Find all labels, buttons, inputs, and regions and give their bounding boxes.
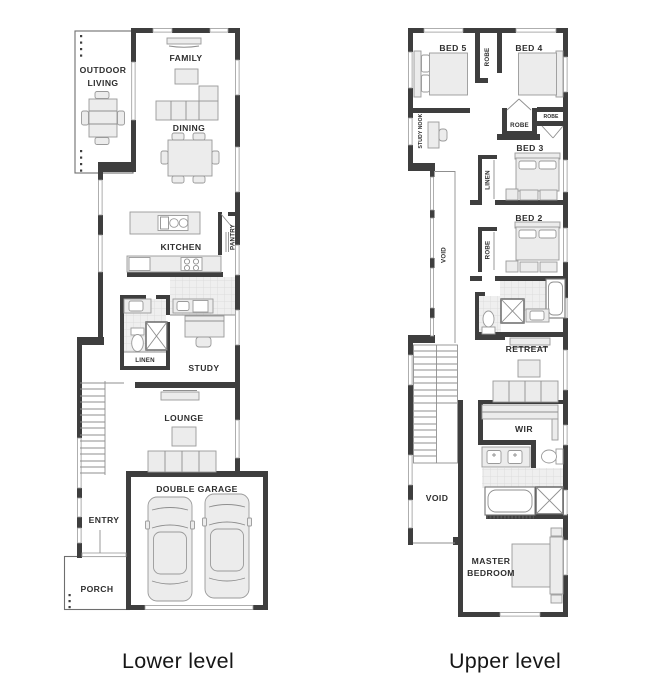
label-void-lower: VOID [426, 493, 449, 503]
label-robe-top: ROBE [484, 48, 491, 67]
toilet [482, 311, 495, 334]
bed-5 [414, 51, 468, 97]
label-bed2: BED 2 [515, 213, 542, 223]
desk-chair [196, 337, 211, 347]
lounge-sofa [148, 451, 216, 472]
label-bed5: BED 5 [439, 43, 466, 53]
label-robe-mid-left: ROBE [510, 122, 529, 129]
bed-4 [519, 51, 564, 97]
stairs [414, 345, 458, 463]
label-robe-bed2: ROBE [485, 241, 492, 260]
label-double-garage: DOUBLE GARAGE [156, 484, 238, 494]
garage-door [145, 606, 253, 610]
basin [129, 301, 143, 311]
svg-text:BEDROOM: BEDROOM [467, 568, 515, 578]
family-tv-unit [167, 38, 201, 47]
caption-upper-level: Upper level [449, 649, 561, 673]
label-bed4: BED 4 [515, 43, 542, 53]
label-study: STUDY [188, 363, 219, 373]
lounge-rug [172, 427, 196, 446]
upper-level-plan: BED 5 ROBE BED 4 ROBE ROBE STUDY NOOK BE… [408, 28, 568, 617]
stairs [80, 381, 124, 475]
label-entry: ENTRY [89, 515, 120, 525]
wir-shelving [482, 405, 558, 440]
family-rug [175, 69, 198, 84]
label-dining: DINING [173, 123, 205, 133]
label-family: FAMILY [169, 53, 202, 63]
study-desk [185, 316, 224, 347]
retreat-table [518, 360, 540, 377]
label-robe-mid-right: ROBE [543, 114, 559, 120]
dining-table-setting [161, 133, 219, 183]
study-nook-desk [428, 122, 447, 148]
entry-door-threshold [82, 553, 126, 557]
label-pantry: PANTRY [230, 223, 237, 250]
caption-lower-level: Lower level [122, 649, 234, 673]
label-study-nook: STUDY NOOK [418, 113, 424, 148]
floorplan-page: OUTDOOR LIVING FAMILY DINING KITCHEN PAN… [0, 0, 655, 677]
porch-area [65, 557, 130, 610]
bed-2 [506, 222, 560, 272]
car-2 [203, 494, 252, 598]
label-lounge: LOUNGE [164, 413, 203, 423]
svg-text:LIVING: LIVING [87, 78, 118, 88]
label-linen: LINEN [485, 170, 492, 190]
lounge-tv-unit [161, 391, 199, 401]
bed-3 [506, 153, 560, 200]
label-master-bedroom: MASTER [472, 556, 511, 566]
family-sofa [156, 86, 218, 120]
label-outdoor-living: OUTDOOR [80, 65, 127, 75]
toilet [131, 328, 144, 352]
kitchen-bench [127, 256, 221, 272]
label-porch: PORCH [80, 584, 113, 594]
toilet [542, 449, 564, 464]
label-void-vertical: VOID [441, 247, 448, 263]
label-wir: WIR [515, 424, 533, 434]
lower-level-plan: OUTDOOR LIVING FAMILY DINING KITCHEN PAN… [65, 28, 269, 610]
kitchen-island [130, 212, 200, 234]
floorplan-canvas: OUTDOOR LIVING FAMILY DINING KITCHEN PAN… [0, 0, 655, 677]
label-retreat: RETREAT [506, 344, 549, 354]
master-bed [512, 528, 563, 603]
label-kitchen: KITCHEN [161, 242, 202, 252]
label-linen: LINEN [135, 357, 155, 364]
label-bed3: BED 3 [516, 143, 543, 153]
car-1 [146, 497, 195, 601]
retreat-sofa [493, 381, 558, 402]
